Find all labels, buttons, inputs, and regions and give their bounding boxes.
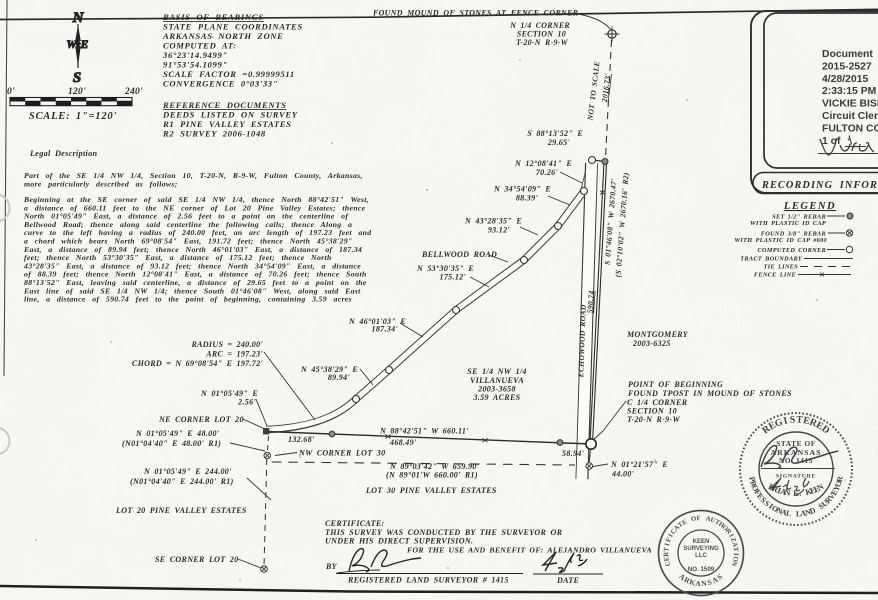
svg-text:LLC: LLC <box>695 553 707 559</box>
svg-text:BELLWOOD ROAD: BELLWOOD ROAD <box>421 250 497 259</box>
svg-text:1 of: 1 of <box>822 136 841 147</box>
svg-text:187.34': 187.34' <box>372 325 399 334</box>
svg-text:2015-2527: 2015-2527 <box>822 61 872 72</box>
svg-text:UNDER HIS DIRECT SUPERVISION.: UNDER HIS DIRECT SUPERVISION. <box>325 537 473 546</box>
svg-text:N: N <box>72 10 85 26</box>
svg-text:SCALE: 1"=120': SCALE: 1"=120' <box>29 111 117 122</box>
svg-text:POINT OF BEGINNING: POINT OF BEGINNING <box>628 380 723 389</box>
svg-text:R1 PINE VALLEY ESTATES: R1 PINE VALLEY ESTATES <box>162 119 292 129</box>
svg-text:E: E <box>80 39 89 51</box>
svg-text:(N01°04'40" E 244.00' R1): (N01°04'40" E 244.00' R1) <box>130 477 234 486</box>
svg-text:BY: BY <box>325 562 338 571</box>
svg-text:FOUND TPOST IN MOUND OF STONES: FOUND TPOST IN MOUND OF STONES <box>627 389 792 398</box>
svg-text:more particularly described as: more particularly described as follows; <box>24 180 178 189</box>
svg-text:70.26': 70.26' <box>536 168 559 177</box>
svg-text:REGISTERED LAND SURVEYOR # 1: REGISTERED LAND SURVEYOR # 1415 <box>347 576 509 585</box>
svg-text:58.94': 58.94' <box>562 449 585 458</box>
svg-text:88.39': 88.39' <box>516 194 539 203</box>
svg-text:LOT 30 PINE VALLEY ESTATES: LOT 30 PINE VALLEY ESTATES <box>365 486 497 495</box>
svg-text:BASIS OF BEARINGS: BASIS OF BEARINGS <box>162 12 264 22</box>
svg-text:91°53'54.1099": 91°53'54.1099" <box>163 60 228 70</box>
svg-text:S: S <box>73 70 81 86</box>
svg-text:Legal Description: Legal Description <box>29 149 98 158</box>
svg-text:MONTGOMERY: MONTGOMERY <box>626 330 689 339</box>
svg-text:FULTON COU: FULTON COU <box>822 123 878 134</box>
svg-text:ARKANSAS NORTH ZONE: ARKANSAS NORTH ZONE <box>162 31 284 41</box>
svg-text:0': 0' <box>7 87 15 97</box>
svg-text:TIE LINES: TIE LINES <box>763 264 798 271</box>
svg-text:CONVERGENCE 0°03'33": CONVERGENCE 0°03'33" <box>163 79 278 89</box>
svg-text:SE 1/4 NW 1/4: SE 1/4 NW 1/4 <box>467 367 526 376</box>
svg-text:RECORDING INFOR: RECORDING INFOR <box>761 180 878 191</box>
svg-text:FOUND MOUND OF STONES AT FENCE: FOUND MOUND OF STONES AT FENCE CORNER <box>373 9 578 18</box>
svg-text:FENCE LINE: FENCE LINE <box>754 272 796 279</box>
svg-text:NE CORNER LOT 20: NE CORNER LOT 20 <box>158 415 244 424</box>
svg-text:2:33:15 PM: 2:33:15 PM <box>822 86 876 97</box>
svg-text:CHORD = N 69°08'54" E 197.72': CHORD = N 69°08'54" E 197.72' <box>132 359 264 368</box>
svg-text:R2 SURVEY 2006-1048: R2 SURVEY 2006-1048 <box>162 129 266 139</box>
svg-text:Circuit Clerk: Circuit Clerk <box>822 111 878 122</box>
svg-text:SCALE FACTOR =0.99999511: SCALE FACTOR =0.99999511 <box>163 69 295 79</box>
svg-text:SE CORNER LOT 20: SE CORNER LOT 20 <box>155 555 238 564</box>
svg-text:line, a distance of 590.74 fee: line, a distance of 590.74 feet to the p… <box>24 295 352 304</box>
svg-text:(N01°04'40" E 48.00' R1): (N01°04'40" E 48.00' R1) <box>122 439 221 448</box>
svg-text:N 88°42'51" W 660.11': N 88°42'51" W 660.11' <box>379 427 469 436</box>
svg-text:468.49': 468.49' <box>389 438 417 447</box>
svg-text:2003-6325: 2003-6325 <box>632 339 671 348</box>
svg-text:COMPUTED CORNER: COMPUTED CORNER <box>757 247 826 254</box>
svg-text:RADIUS = 240.00': RADIUS = 240.00' <box>190 340 263 349</box>
svg-text:NW CORNER LOT 30: NW CORNER LOT 30 <box>298 449 385 458</box>
svg-text:2.56': 2.56' <box>237 398 256 407</box>
svg-text:N 34°54'09" E: N 34°54'09" E <box>493 185 551 194</box>
svg-text:93.12': 93.12' <box>488 226 511 235</box>
svg-text:TRACT BOUNDARY: TRACT BOUNDARY <box>740 256 803 263</box>
svg-text:89.94': 89.94' <box>328 373 351 382</box>
svg-text:N 43°28'35" E: N 43°28'35" E <box>464 217 522 226</box>
svg-text:T-20-N R-9-W: T-20-N R-9-W <box>516 38 569 47</box>
svg-text:N 01°05'49" E 48.00': N 01°05'49" E 48.00' <box>135 429 220 438</box>
svg-text:175.12': 175.12' <box>440 273 467 282</box>
svg-text:N 12°08'41" E: N 12°08'41" E <box>514 159 572 168</box>
svg-text:36°23'14.9499": 36°23'14.9499" <box>162 50 228 60</box>
svg-text:VICKIE BISH: VICKIE BISH <box>822 99 878 110</box>
svg-text:STATE PLANE COORDINATES: STATE PLANE COORDINATES <box>163 22 303 32</box>
svg-text:STATE OF: STATE OF <box>776 439 816 448</box>
svg-text:REFERENCE DOCUMENTS: REFERENCE DOCUMENTS <box>162 100 287 110</box>
svg-text:LOT 20 PINE VALLEY ESTATES: LOT 20 PINE VALLEY ESTATES <box>115 506 247 515</box>
svg-text:S 88°13'52" E: S 88°13'52" E <box>527 129 583 138</box>
svg-text:F: F <box>696 515 701 522</box>
svg-text:240': 240' <box>124 87 143 97</box>
svg-text:FOR THE USE AND BENEFIT OF: AL: FOR THE USE AND BENEFIT OF: ALEJANDRO VI… <box>407 546 652 555</box>
svg-text:SURVEYING: SURVEYING <box>683 546 719 552</box>
svg-text:N 01°05'49" E 244.00': N 01°05'49" E 244.00' <box>143 467 232 476</box>
svg-text:(N 89°01'W 660.00' R1): (N 89°01'W 660.00' R1) <box>386 471 478 480</box>
svg-text:44.00': 44.00' <box>611 470 635 479</box>
svg-text:4/28/2015: 4/28/2015 <box>822 74 868 85</box>
svg-text:T-20-N R-9-W: T-20-N R-9-W <box>627 415 680 424</box>
svg-text:LEGEND: LEGEND <box>783 201 836 212</box>
svg-text:3.59 ACRES: 3.59 ACRES <box>473 393 521 402</box>
svg-text:132.68': 132.68' <box>288 435 315 444</box>
svg-text:KEEN: KEEN <box>693 539 710 545</box>
svg-text:SIGNATURE: SIGNATURE <box>776 474 816 480</box>
svg-text:N 01°21'57" E: N 01°21'57" E <box>610 460 668 469</box>
svg-text:COMPUTED AT:: COMPUTED AT: <box>163 41 237 51</box>
svg-text:DATE: DATE <box>556 576 579 585</box>
svg-text:29.65': 29.65' <box>547 138 571 147</box>
svg-text:CERTIFICATE:: CERTIFICATE: <box>325 519 385 528</box>
svg-text:WITH PLASTIC ID CAP #600: WITH PLASTIC ID CAP #600 <box>734 237 827 244</box>
svg-text:WITH PLASTIC ID CAP: WITH PLASTIC ID CAP <box>750 220 826 227</box>
svg-text:Document: Document <box>822 49 873 60</box>
svg-text:W: W <box>66 39 77 51</box>
svg-text:DEEDS LISTED ON SURVEY: DEEDS LISTED ON SURVEY <box>162 110 298 120</box>
svg-text:NO. 1509: NO. 1509 <box>688 566 715 573</box>
svg-text:120': 120' <box>68 87 86 97</box>
svg-text:ARC = 197.23': ARC = 197.23' <box>205 350 263 359</box>
